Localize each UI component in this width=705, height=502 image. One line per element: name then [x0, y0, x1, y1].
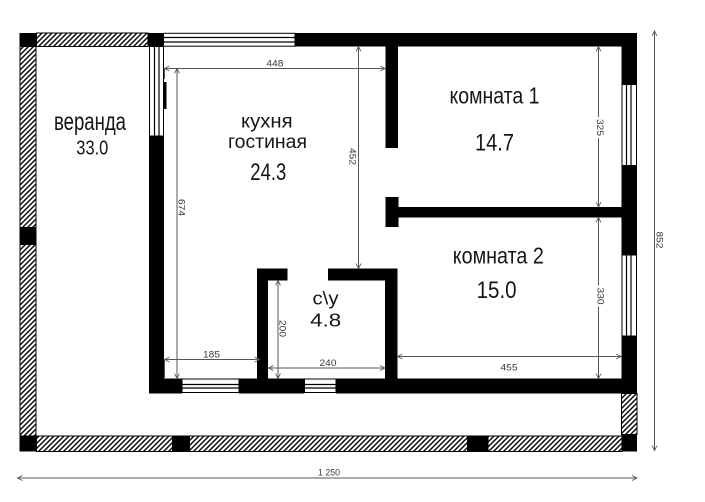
svg-text:330: 330	[596, 288, 606, 305]
svg-text:кухня: кухня	[241, 112, 293, 133]
svg-text:24.3: 24.3	[250, 159, 286, 186]
svg-text:гостиная: гостиная	[228, 132, 307, 153]
svg-text:4.8: 4.8	[310, 309, 341, 330]
svg-text:комната 1: комната 1	[450, 83, 540, 109]
svg-text:комната 2: комната 2	[453, 243, 544, 269]
svg-text:185: 185	[203, 350, 220, 360]
svg-text:240: 240	[320, 358, 337, 368]
svg-text:455: 455	[501, 363, 518, 373]
svg-text:325: 325	[595, 119, 605, 136]
svg-text:452: 452	[348, 148, 358, 165]
svg-text:200: 200	[278, 320, 288, 337]
svg-text:веранда: веранда	[54, 108, 126, 136]
svg-text:448: 448	[266, 59, 283, 69]
svg-text:15.0: 15.0	[477, 277, 517, 304]
svg-text:852: 852	[655, 232, 665, 249]
svg-text:674: 674	[177, 199, 187, 216]
svg-text:1 250: 1 250	[318, 468, 340, 478]
svg-text:с\у: с\у	[313, 289, 339, 309]
svg-text:33.0: 33.0	[76, 137, 108, 160]
svg-text:14.7: 14.7	[475, 130, 514, 157]
